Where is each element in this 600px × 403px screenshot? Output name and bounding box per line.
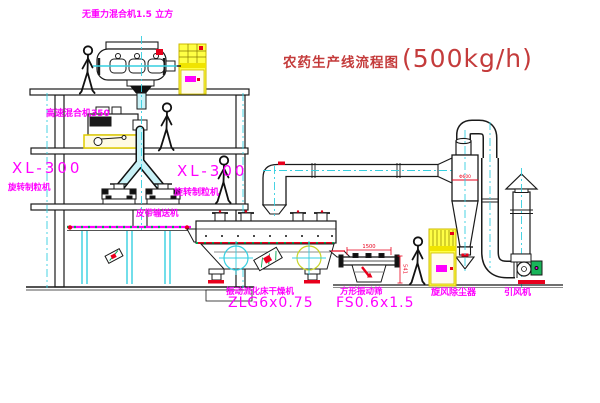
indicator-light-icon xyxy=(450,232,454,235)
exhaust-duct xyxy=(263,158,452,216)
person-figure xyxy=(80,46,95,93)
sieve-length-dim: 1500 xyxy=(362,244,375,250)
belt-conveyor xyxy=(67,225,191,284)
label-sieve-model: FS0.6x1.5 xyxy=(336,296,415,310)
label-dryer-model: ZLG6x0.75 xyxy=(228,296,314,310)
vibrating-sieve: 1500 541 xyxy=(330,244,408,283)
sensor-icon xyxy=(278,162,285,166)
flow-diagram: 1500 541 Φ600 xyxy=(0,0,600,403)
person-figure xyxy=(410,237,425,284)
label-high-speed-mixer: 高速混合机350 xyxy=(46,110,110,119)
label-cyclone: 旋风除尘器 xyxy=(431,289,476,298)
label-belt-conveyor: 皮带输送机 xyxy=(136,210,179,219)
control-cabinet-top xyxy=(179,44,206,94)
label-granulator-left-name: 旋转制粒机 xyxy=(8,184,51,193)
gravity-mixer xyxy=(93,42,181,109)
control-cabinet-right xyxy=(429,229,456,286)
granulator-left xyxy=(102,184,136,204)
sieve-height-dim: 541 xyxy=(402,264,408,274)
label-fan: 引风机 xyxy=(504,289,531,298)
roller-icon xyxy=(68,225,72,229)
indicator-light-icon xyxy=(450,267,453,270)
indicator-light-icon xyxy=(197,78,200,81)
label-granulator-left-model: XL-300 xyxy=(12,161,82,176)
sensor-icon xyxy=(156,49,163,55)
title-text: 农药生产线流程图 xyxy=(283,51,399,71)
label-granulator-right-name: 旋转制粒机 xyxy=(174,189,219,198)
draft-fan xyxy=(511,254,545,284)
person-figure xyxy=(159,103,174,150)
title-capacity: (500kg/h) xyxy=(402,44,533,73)
drawing-title: 农药生产线流程图 (500kg/h) xyxy=(283,44,533,73)
cabinet-display-icon xyxy=(185,76,196,82)
label-gravity-mixer: 无重力混合机1.5 立方 xyxy=(82,11,173,20)
cyclone-separator: Φ600 xyxy=(452,122,517,278)
cabinet-display-icon xyxy=(436,265,447,272)
vibration-motor-icon xyxy=(105,249,123,264)
label-granulator-right-model: XL-300 xyxy=(177,164,247,179)
indicator-light-icon xyxy=(199,46,203,50)
